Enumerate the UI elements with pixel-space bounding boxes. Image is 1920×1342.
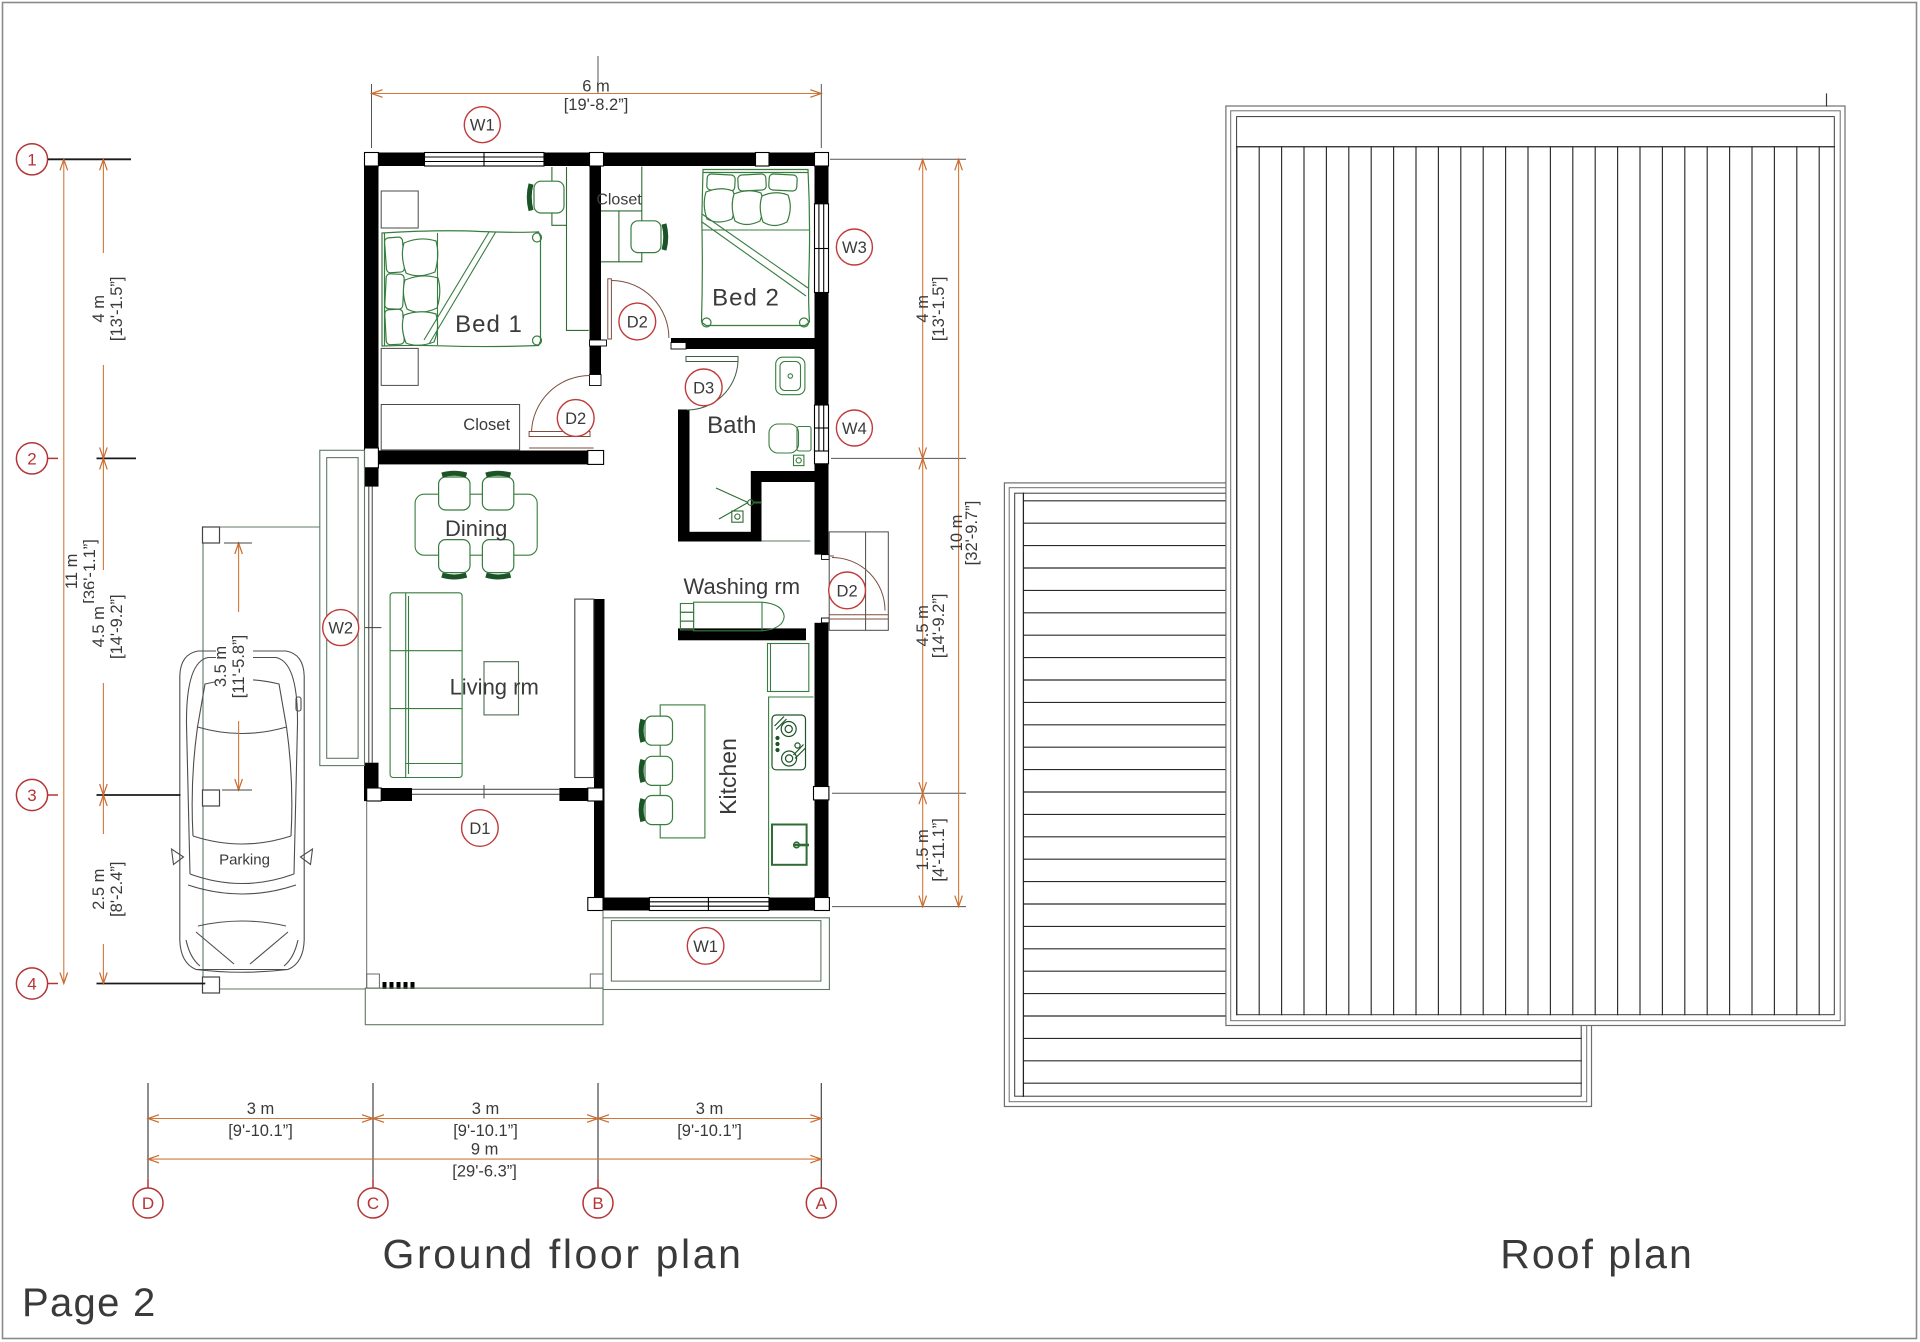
svg-text:[9'-10.1”]: [9'-10.1”]: [453, 1122, 518, 1140]
svg-text:[32'-9.7”]: [32'-9.7”]: [963, 501, 981, 566]
svg-text:W3: W3: [842, 239, 867, 257]
svg-text:2.5 m: 2.5 m: [90, 869, 108, 910]
svg-text:6 m: 6 m: [582, 78, 610, 96]
svg-text:W4: W4: [842, 420, 867, 438]
svg-text:[13'-1.5”]: [13'-1.5”]: [930, 276, 948, 341]
svg-text:[9'-10.1”]: [9'-10.1”]: [228, 1122, 293, 1140]
svg-text:D: D: [142, 1194, 154, 1213]
svg-text:3.5 m: 3.5 m: [212, 646, 230, 687]
svg-text:Parking: Parking: [219, 852, 270, 869]
svg-text:Closet: Closet: [596, 192, 642, 209]
svg-text:[8'-2.4”]: [8'-2.4”]: [108, 861, 126, 916]
svg-text:W1: W1: [693, 938, 718, 956]
svg-text:B: B: [592, 1194, 603, 1213]
svg-text:2: 2: [27, 449, 36, 468]
svg-text:Page 2: Page 2: [22, 1281, 157, 1325]
svg-text:Dining: Dining: [445, 516, 507, 541]
svg-text:D1: D1: [469, 820, 490, 838]
svg-text:Roof plan: Roof plan: [1500, 1231, 1694, 1277]
svg-text:4 m: 4 m: [90, 295, 108, 323]
svg-text:3 m: 3 m: [696, 1100, 724, 1118]
svg-text:D2: D2: [627, 313, 648, 331]
svg-text:Bed 1: Bed 1: [455, 311, 523, 338]
svg-text:9 m: 9 m: [471, 1141, 499, 1159]
svg-text:[4'-11.1”]: [4'-11.1”]: [930, 818, 948, 881]
svg-text:4.5 m: 4.5 m: [90, 606, 108, 647]
svg-text:Kitchen: Kitchen: [715, 738, 741, 815]
svg-text:Washing rm: Washing rm: [684, 574, 801, 599]
svg-text:1: 1: [27, 150, 36, 169]
svg-text:[19'-8.2”]: [19'-8.2”]: [564, 96, 629, 114]
svg-text:D2: D2: [837, 582, 858, 600]
svg-text:3 m: 3 m: [247, 1100, 275, 1118]
svg-text:[9'-10.1”]: [9'-10.1”]: [677, 1122, 742, 1140]
svg-text:11 m: 11 m: [63, 554, 81, 589]
svg-text:[13'-1.5”]: [13'-1.5”]: [108, 276, 126, 341]
svg-text:3 m: 3 m: [472, 1100, 500, 1118]
svg-text:Closet: Closet: [463, 416, 510, 434]
svg-text:[14'-9.2”]: [14'-9.2”]: [108, 594, 126, 659]
svg-text:Living rm: Living rm: [450, 675, 539, 700]
svg-text:W1: W1: [470, 117, 495, 135]
svg-text:D3: D3: [693, 379, 714, 397]
svg-text:[29'-6.3”]: [29'-6.3”]: [452, 1163, 517, 1181]
svg-text:D2: D2: [565, 410, 586, 428]
svg-text:4: 4: [27, 975, 36, 994]
svg-text:A: A: [816, 1194, 828, 1213]
svg-text:Bed 2: Bed 2: [712, 285, 780, 312]
svg-text:C: C: [367, 1194, 379, 1213]
svg-text:[11'-5.8”]: [11'-5.8”]: [230, 635, 248, 698]
svg-text:Bath: Bath: [707, 412, 756, 439]
svg-text:3: 3: [27, 786, 36, 805]
svg-text:Ground floor plan: Ground floor plan: [382, 1231, 743, 1277]
svg-text:W2: W2: [328, 620, 353, 638]
svg-text:[14'-9.2”]: [14'-9.2”]: [930, 593, 948, 658]
